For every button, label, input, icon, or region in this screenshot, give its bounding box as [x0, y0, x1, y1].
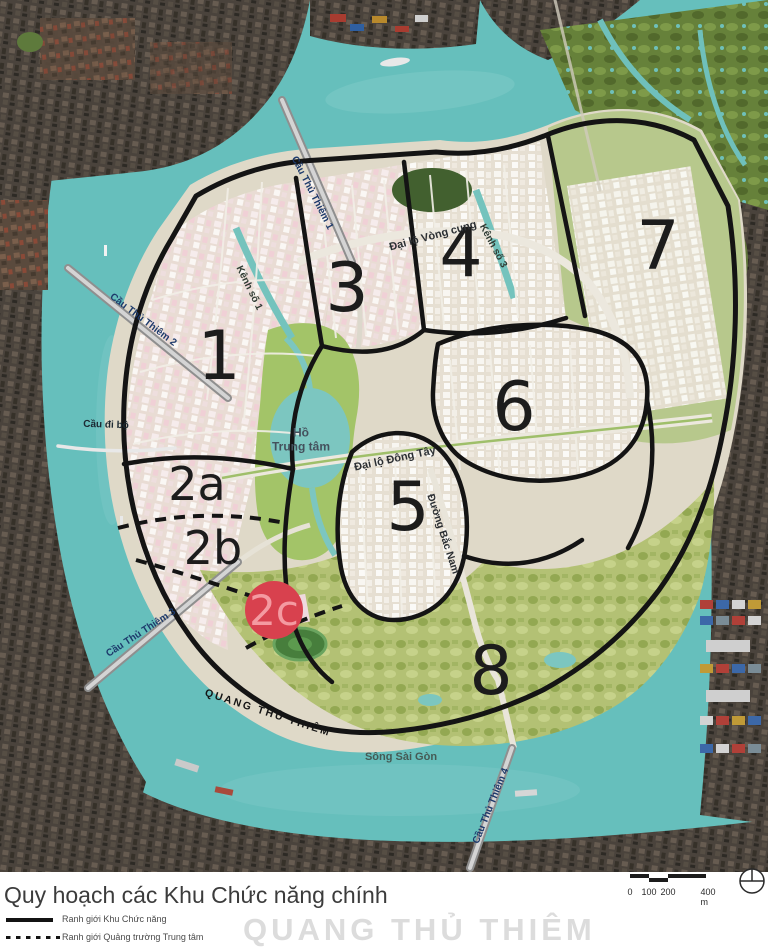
satellite-map-artwork — [0, 0, 768, 872]
zone-label-5: 5 — [386, 474, 429, 542]
zone-2c-highlight: 2c — [245, 581, 303, 639]
scale-bar-segment — [630, 874, 649, 878]
scale-label: 100 — [641, 887, 656, 897]
label-cau-di-bo: Cầu đi bộ — [83, 419, 129, 432]
label-ho-trung-tam: Hồ Trung tâm — [272, 426, 330, 455]
scale-label: 0 — [627, 887, 632, 897]
dashed-line-swatch — [6, 936, 60, 939]
solid-line-swatch — [6, 918, 53, 922]
scale-bar-segment — [668, 874, 706, 878]
zone-label-8: 8 — [469, 638, 512, 706]
planning-map-page: 1 2a 2b 3 4 5 6 7 8 2c Cầu Thủ Thiêm 1 C… — [0, 0, 768, 950]
compass-icon — [737, 865, 767, 895]
scale-bar-segment — [649, 878, 668, 882]
zone-label-6: 6 — [492, 374, 535, 442]
legend-label-zone-boundary: Ranh giới Khu Chức năng — [62, 914, 167, 924]
scale-label: 200 — [660, 887, 675, 897]
zone-label-2b: 2b — [184, 525, 242, 571]
zone-label-2c: 2c — [249, 586, 299, 635]
map-canvas: 1 2a 2b 3 4 5 6 7 8 2c Cầu Thủ Thiêm 1 C… — [0, 0, 768, 872]
legend-label-central-square-boundary: Ranh giới Quảng trường Trung tâm — [62, 932, 203, 942]
lake-label-line1: Hồ — [272, 426, 330, 440]
zone-label-3: 3 — [325, 255, 368, 323]
zone-label-7: 7 — [636, 213, 679, 281]
lake-label-line2: Trung tâm — [272, 440, 330, 454]
map-legend-footer: Quy hoạch các Khu Chức năng chính Ranh g… — [0, 872, 768, 950]
scale-bar: 0 100 200 400 m — [630, 874, 708, 894]
zone-label-2a: 2a — [168, 461, 225, 507]
map-title: Quy hoạch các Khu Chức năng chính — [4, 882, 388, 909]
scale-label: 400 m — [700, 887, 715, 907]
label-song-sai-gon: Sông Sài Gòn — [365, 751, 437, 763]
zone-label-1: 1 — [197, 323, 240, 391]
footer-watermark: QUANG THỦ THIÊM — [243, 914, 596, 945]
